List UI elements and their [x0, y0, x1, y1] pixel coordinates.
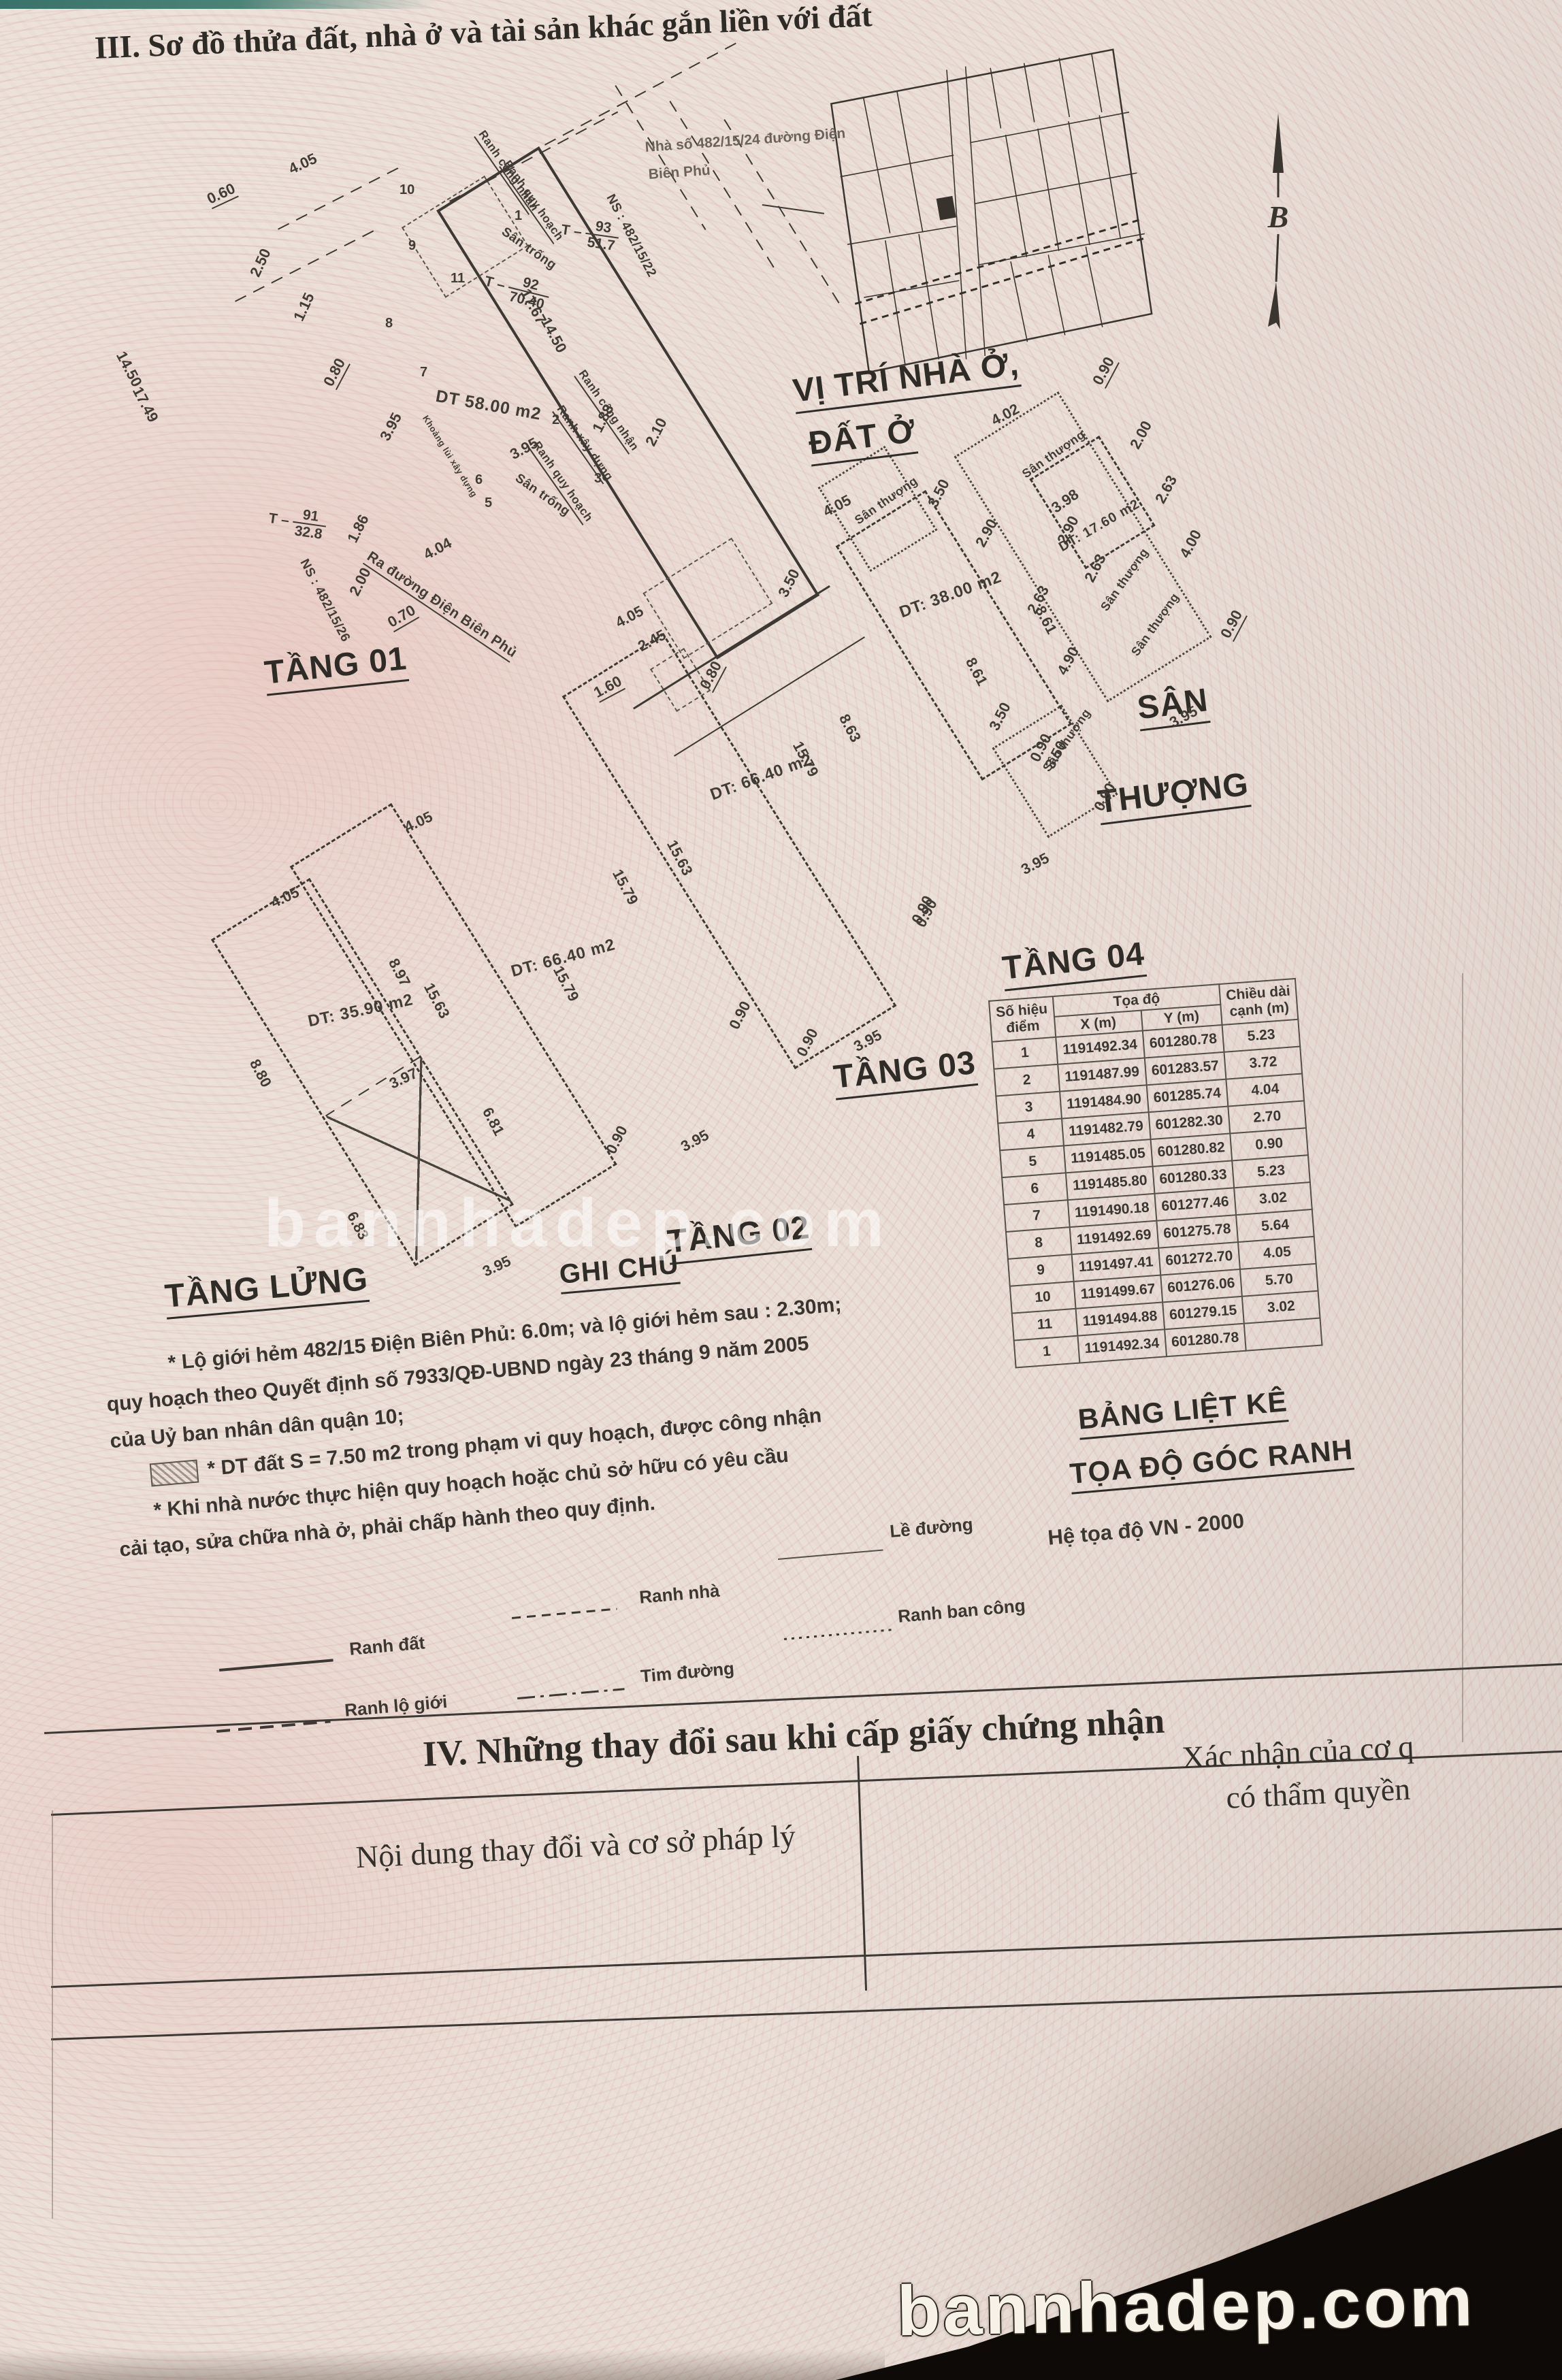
table-cell: 601280.78 — [1165, 1324, 1246, 1356]
table-cell: 11 — [1012, 1309, 1078, 1341]
tang-01-point-number: 10 — [400, 182, 414, 198]
col-header-point: Số hiệu điểm — [989, 996, 1056, 1042]
coord-table-body: 11191492.34601280.785.2321191487.9960128… — [992, 1020, 1322, 1368]
north-arrow-fletching — [1268, 282, 1280, 329]
page-inner-edge — [1462, 973, 1463, 1742]
table-cell: 7 — [1004, 1200, 1070, 1232]
section4-left-border — [52, 1810, 53, 2219]
location-map-drawing — [820, 44, 1163, 378]
table-surface-sliver — [0, 0, 436, 9]
north-arrow: B — [1256, 110, 1303, 338]
watermark-bottom: bannhadep.com — [896, 2262, 1476, 2353]
table-cell — [1244, 1318, 1322, 1351]
table-cell: 10 — [1010, 1282, 1076, 1314]
tang-01-point-number: 3 — [594, 471, 602, 487]
col-header-length: Chiều dài cạnh (m) — [1219, 979, 1299, 1025]
north-arrow-head — [1273, 113, 1284, 173]
table-cell: 1191492.34 — [1077, 1329, 1166, 1363]
table-cell: 4 — [998, 1119, 1064, 1151]
tang-01-point-number: 1 — [515, 208, 522, 224]
table-cell: 1 — [992, 1037, 1058, 1069]
tang-01-point-number: 5 — [485, 495, 492, 511]
table-cell: 9 — [1008, 1254, 1074, 1286]
hatch-swatch — [150, 1460, 199, 1487]
watermark-center: bannhadep.com — [264, 1184, 892, 1262]
location-map — [820, 44, 1163, 378]
tang-01-point-number: 2 — [552, 412, 559, 428]
table-cell: 1 — [1014, 1336, 1080, 1368]
coordinate-table: Số hiệu điểm Tọa độ Chiều dài cạnh (m) X… — [988, 978, 1323, 1369]
table-cell: 6 — [1002, 1173, 1068, 1205]
table-cell: 8 — [1006, 1227, 1072, 1259]
tang-01-point-number: 6 — [475, 472, 483, 488]
tang-01-point-number: 7 — [420, 365, 427, 380]
tang-01-point-number: 8 — [385, 316, 393, 331]
table-cell: 3 — [996, 1092, 1062, 1124]
table-cell: 5 — [1000, 1145, 1066, 1177]
tang-01-point-number: 9 — [408, 238, 416, 254]
table-cell: 2 — [994, 1064, 1060, 1096]
subject-parcel-mark — [937, 196, 956, 221]
north-letter: B — [1267, 199, 1289, 234]
tang-01-point-number: 11 — [451, 271, 465, 287]
bottom-shadow — [0, 2349, 885, 2380]
